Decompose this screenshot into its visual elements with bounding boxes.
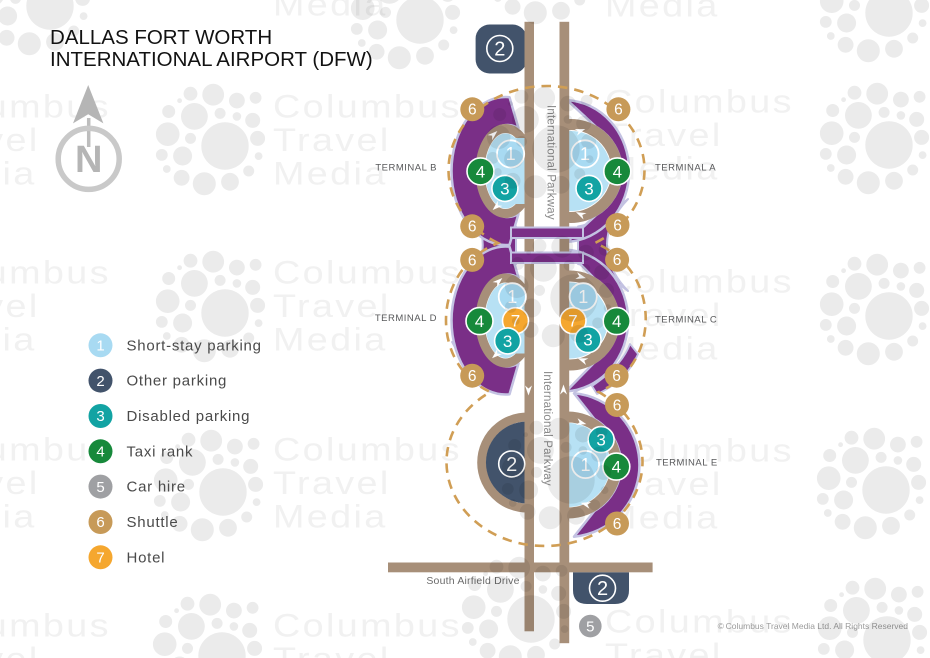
svg-text:3: 3 (584, 179, 593, 198)
svg-text:Travel: Travel (0, 641, 40, 658)
svg-text:DALLAS FORT WORTH: DALLAS FORT WORTH (50, 26, 272, 49)
svg-text:Columbus: Columbus (273, 608, 462, 644)
svg-text:2: 2 (96, 373, 104, 390)
svg-text:6: 6 (468, 102, 477, 119)
svg-text:Columbus: Columbus (0, 608, 111, 644)
svg-text:Media: Media (0, 499, 37, 535)
svg-text:Travel: Travel (0, 122, 40, 158)
svg-text:TERMINAL D: TERMINAL D (375, 313, 437, 324)
svg-text:Shuttle: Shuttle (127, 514, 179, 531)
svg-text:3: 3 (96, 408, 104, 425)
svg-text:6: 6 (613, 397, 622, 414)
svg-text:Travel: Travel (605, 637, 723, 658)
svg-text:6: 6 (613, 217, 622, 234)
svg-text:Columbus: Columbus (605, 264, 794, 300)
svg-text:INTERNATIONAL AIRPORT (DFW): INTERNATIONAL AIRPORT (DFW) (50, 48, 373, 71)
svg-text:4: 4 (96, 444, 104, 461)
svg-text:Media: Media (273, 156, 388, 192)
svg-text:Travel: Travel (0, 288, 40, 324)
svg-text:Columbus: Columbus (0, 255, 111, 291)
svg-text:1: 1 (96, 338, 104, 355)
svg-text:6: 6 (468, 219, 477, 236)
svg-text:6: 6 (468, 252, 477, 269)
svg-text:Columbus: Columbus (273, 89, 462, 125)
svg-text:Media: Media (0, 322, 37, 358)
svg-text:4: 4 (613, 162, 622, 181)
svg-text:Media: Media (605, 0, 720, 24)
svg-text:Columbus: Columbus (605, 84, 794, 120)
svg-text:4: 4 (612, 458, 621, 477)
svg-text:3: 3 (503, 332, 512, 351)
svg-text:TERMINAL A: TERMINAL A (655, 163, 716, 174)
svg-text:TERMINAL E: TERMINAL E (656, 458, 718, 469)
svg-text:Disabled parking: Disabled parking (127, 408, 251, 425)
svg-text:4: 4 (476, 162, 485, 181)
svg-text:Media: Media (273, 499, 388, 535)
svg-text:Car hire: Car hire (127, 479, 186, 496)
svg-text:6: 6 (96, 514, 104, 531)
svg-text:Columbus: Columbus (273, 432, 462, 468)
svg-text:N: N (75, 139, 102, 181)
svg-text:5: 5 (586, 618, 594, 635)
svg-text:2: 2 (494, 39, 505, 61)
svg-text:Columbus: Columbus (273, 255, 462, 291)
svg-text:4: 4 (612, 312, 621, 331)
svg-text:Hotel: Hotel (127, 549, 166, 566)
svg-text:Taxi rank: Taxi rank (127, 443, 194, 460)
svg-text:Media: Media (273, 322, 388, 358)
svg-text:6: 6 (614, 102, 623, 119)
svg-text:Travel: Travel (273, 122, 391, 158)
svg-text:4: 4 (475, 312, 484, 331)
svg-text:Travel: Travel (0, 465, 40, 501)
svg-text:6: 6 (612, 368, 621, 385)
svg-text:2: 2 (597, 578, 608, 600)
svg-text:Media: Media (0, 156, 37, 192)
svg-text:6: 6 (468, 368, 477, 385)
svg-text:6: 6 (613, 252, 622, 269)
svg-text:TERMINAL B: TERMINAL B (375, 163, 437, 174)
svg-text:Other parking: Other parking (127, 373, 228, 390)
svg-text:Travel: Travel (273, 288, 391, 324)
svg-text:TERMINAL C: TERMINAL C (655, 315, 717, 326)
svg-text:5: 5 (96, 479, 104, 496)
svg-text:6: 6 (613, 516, 622, 533)
svg-text:7: 7 (96, 550, 104, 567)
svg-text:Short-stay parking: Short-stay parking (127, 337, 262, 354)
svg-text:Travel: Travel (273, 465, 391, 501)
svg-text:Travel: Travel (273, 641, 391, 658)
